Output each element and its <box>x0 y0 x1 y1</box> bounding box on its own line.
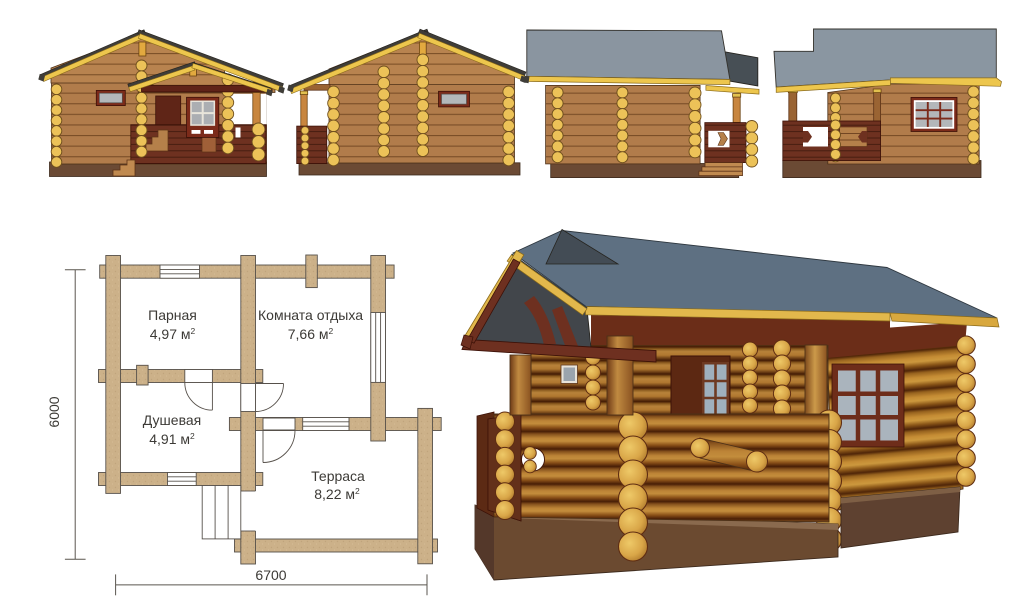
svg-text:4,97 м2: 4,97 м2 <box>150 326 196 342</box>
svg-text:Терраса: Терраса <box>311 468 365 484</box>
svg-text:7,66 м2: 7,66 м2 <box>288 326 334 342</box>
svg-text:6700: 6700 <box>255 567 286 583</box>
svg-text:Душевая: Душевая <box>143 412 201 428</box>
svg-text:Комната отдыха: Комната отдыха <box>258 307 363 323</box>
svg-text:6000: 6000 <box>46 396 62 427</box>
svg-text:Парная: Парная <box>148 307 197 323</box>
svg-text:8,22 м2: 8,22 м2 <box>314 486 360 502</box>
svg-text:4,91 м2: 4,91 м2 <box>149 431 195 447</box>
